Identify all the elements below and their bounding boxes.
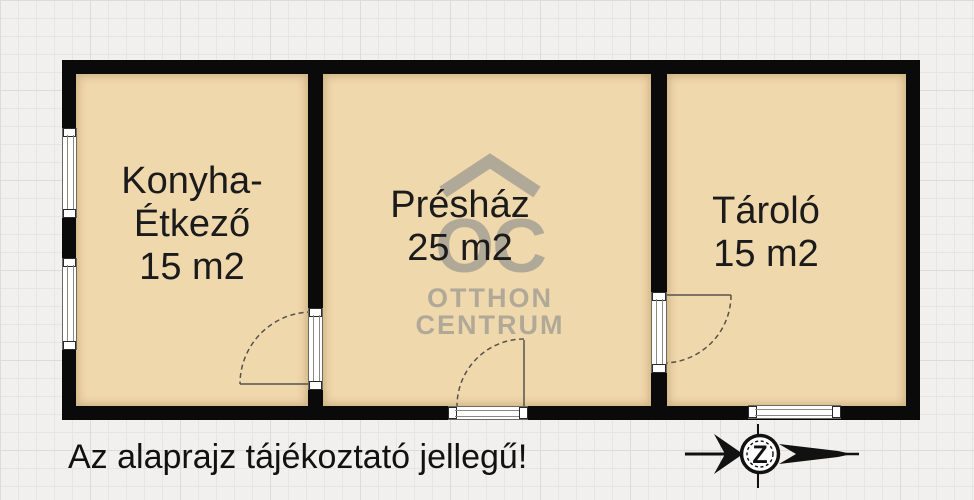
- room-label-line: Étkező: [121, 203, 263, 246]
- window-left-2: [62, 258, 77, 350]
- door-panel: [656, 299, 663, 366]
- room-area: 25 m2: [390, 227, 529, 270]
- door-panel: [455, 410, 521, 417]
- floor-plan: OC OTTHON CENTRUM Konyha- Étkező 15 m2 P…: [62, 60, 920, 420]
- compass-letter: Z: [752, 441, 767, 469]
- room-label-preshaz: Présház 25 m2: [390, 184, 529, 270]
- door-panel: [313, 315, 320, 383]
- room-label-line: Konyha-: [121, 160, 263, 203]
- north-arrow-compass-icon: Z: [650, 418, 870, 498]
- compass-arrow-head: [779, 444, 852, 464]
- room-label-konyha-etkezo: Konyha- Étkező 15 m2: [121, 160, 263, 289]
- door-opening-2: [448, 406, 528, 420]
- window-glass: [67, 135, 74, 211]
- disclaimer-caption: Az alaprajz tájékoztató jellegű!: [68, 438, 527, 477]
- window-glass: [755, 409, 834, 416]
- window-glass: [67, 265, 74, 343]
- door-opening-3: [651, 292, 667, 373]
- room-label-line: Tároló: [712, 190, 820, 233]
- window-left-1: [62, 128, 77, 218]
- room-area: 15 m2: [712, 233, 820, 276]
- room-area: 15 m2: [121, 246, 263, 289]
- room-label-line: Présház: [390, 184, 529, 227]
- door-opening-1: [308, 308, 323, 390]
- window-bottom: [748, 405, 841, 419]
- room-label-tarolo: Tároló 15 m2: [712, 190, 820, 276]
